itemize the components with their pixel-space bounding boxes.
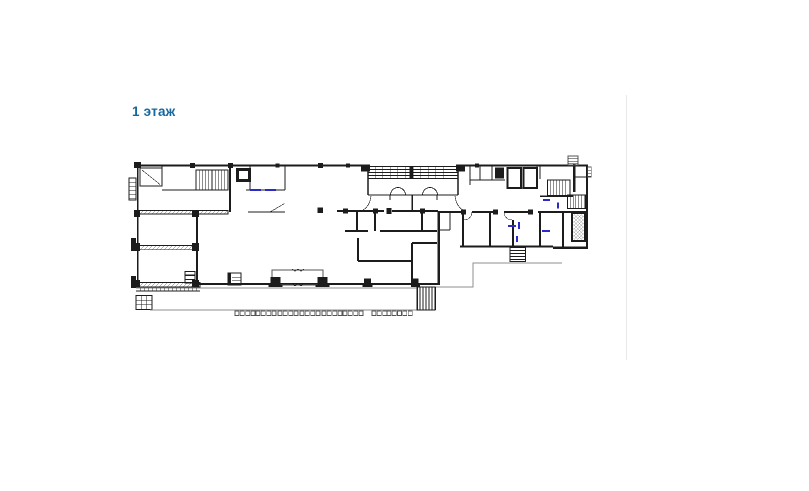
elevator-top-left: [238, 170, 250, 181]
pavement-edge: [435, 263, 562, 287]
left-bay-windows: [129, 178, 136, 288]
stair-top-right: [540, 180, 573, 196]
paver-ticks: [235, 311, 412, 315]
page: 1 этаж: [0, 0, 809, 491]
glazed-terrace: [361, 165, 465, 213]
stairwell-top-left: [196, 170, 228, 190]
right-wing-rooms: [440, 210, 563, 248]
elevator-block-top-right: [508, 168, 538, 188]
blue-door-marks: [250, 190, 558, 242]
hall-columns: [318, 208, 324, 214]
left-wing-rooms: [134, 204, 285, 289]
floor-plan: [128, 150, 593, 318]
stair-right-lower: [510, 248, 526, 262]
content-divider: [626, 95, 627, 360]
entrance-porch: [269, 269, 330, 287]
floor-heading: 1 этаж: [132, 104, 175, 119]
mid-rooms: [337, 208, 450, 285]
lower-terrace: [136, 288, 417, 310]
exterior-stair-south: [417, 287, 435, 310]
